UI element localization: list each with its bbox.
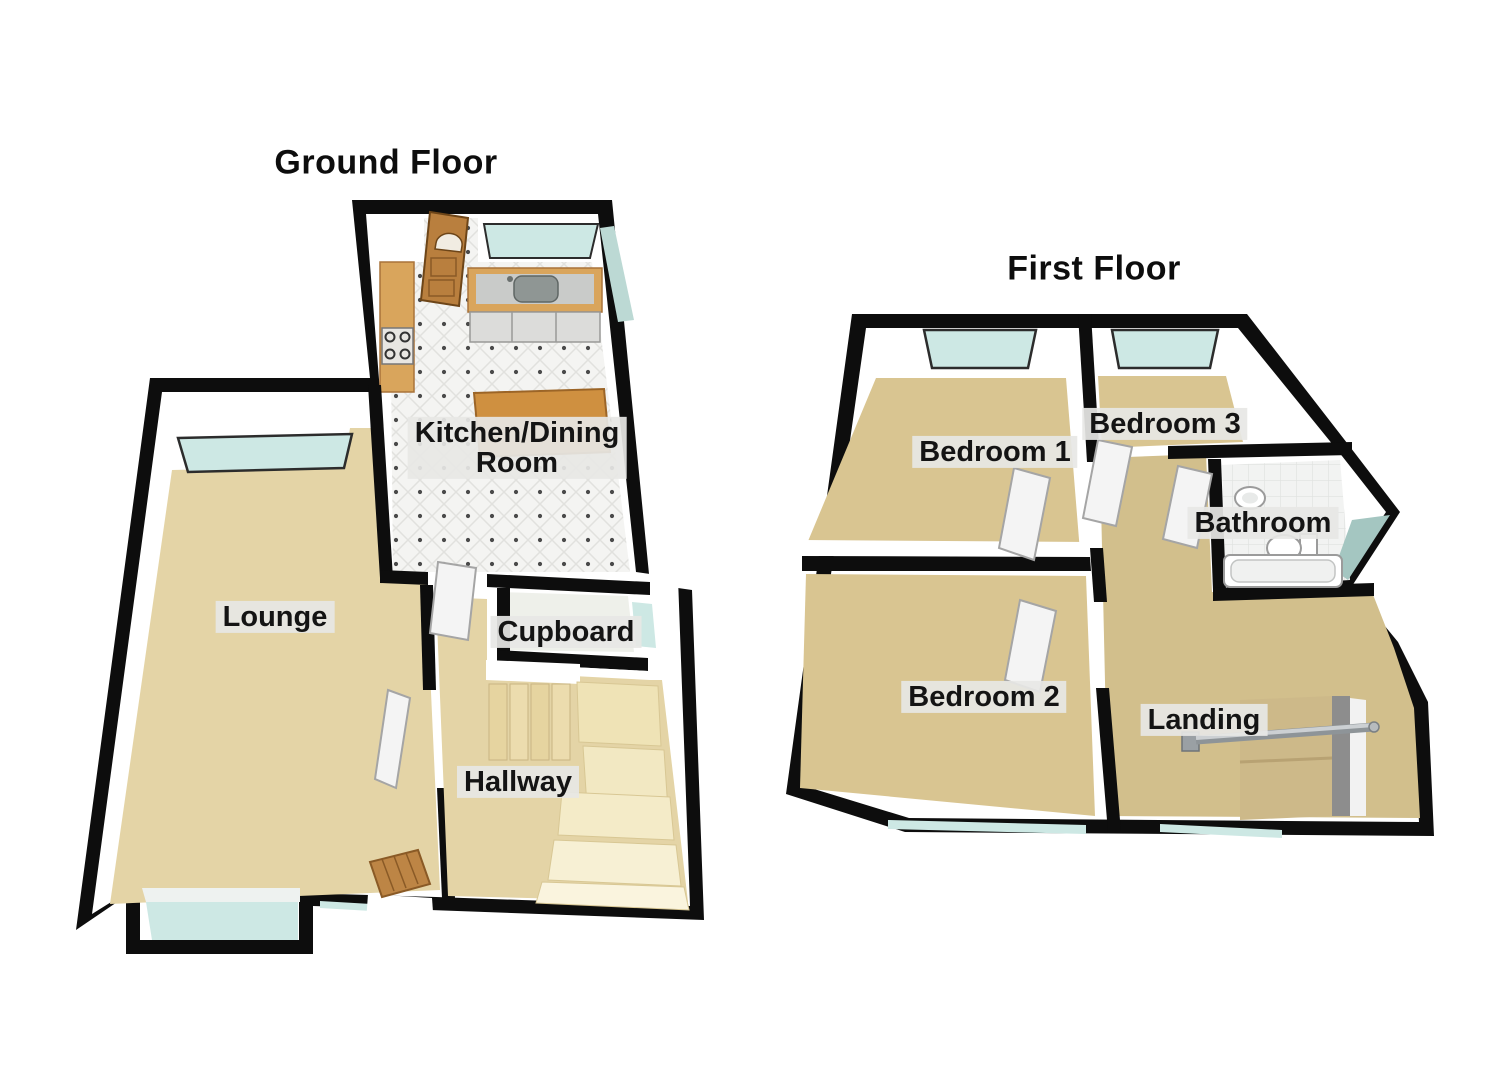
kitchen-hob — [382, 328, 413, 364]
entrance-door — [421, 212, 468, 306]
bedroom3-window-glass — [1112, 330, 1218, 368]
bedroom3-label: Bedroom 3 — [1082, 408, 1247, 440]
kitchen-dining-label: Kitchen/Dining Room — [408, 417, 627, 479]
kitchen-counter-left — [380, 262, 414, 392]
first-floor-plan — [786, 314, 1434, 838]
bay-window-glass — [146, 902, 298, 940]
landing-label: Landing — [1141, 704, 1268, 736]
hallway-label: Hallway — [457, 766, 579, 798]
kitchen-dining-label-line2: Room — [415, 448, 620, 478]
wall-bed1-bed2 — [802, 556, 1091, 571]
bathroom-label: Bathroom — [1188, 507, 1339, 539]
kitchen-hall-door — [430, 562, 476, 640]
floorplan-canvas — [0, 0, 1485, 1080]
front-doorway-gap — [366, 894, 434, 926]
wall-bed1-bed2-face — [802, 540, 1090, 557]
bathroom-bathtub — [1224, 555, 1342, 587]
kitchen-window-glass-top — [484, 224, 598, 258]
bedroom1-window-glass — [924, 330, 1036, 368]
bay-window-sill — [142, 888, 300, 902]
kitchen-dining-label-line1: Kitchen/Dining — [415, 418, 620, 448]
bathroom-sink — [1235, 487, 1265, 509]
ground-floor-plan — [76, 200, 704, 954]
bedroom2-label: Bedroom 2 — [901, 681, 1066, 713]
lounge-label: Lounge — [216, 601, 335, 633]
wall-kitchen-bottom-left — [380, 570, 428, 585]
cupboard-label: Cupboard — [491, 616, 642, 648]
ground-floor-title: Ground Floor — [274, 144, 497, 183]
lounge-window-glass — [178, 434, 352, 472]
bedroom1-label: Bedroom 1 — [912, 436, 1077, 468]
first-floor-title: First Floor — [1007, 250, 1181, 289]
floorplan-page: Ground Floor First Floor Kitchen/Dining … — [0, 0, 1485, 1080]
kitchen-sink-unit — [468, 268, 602, 342]
